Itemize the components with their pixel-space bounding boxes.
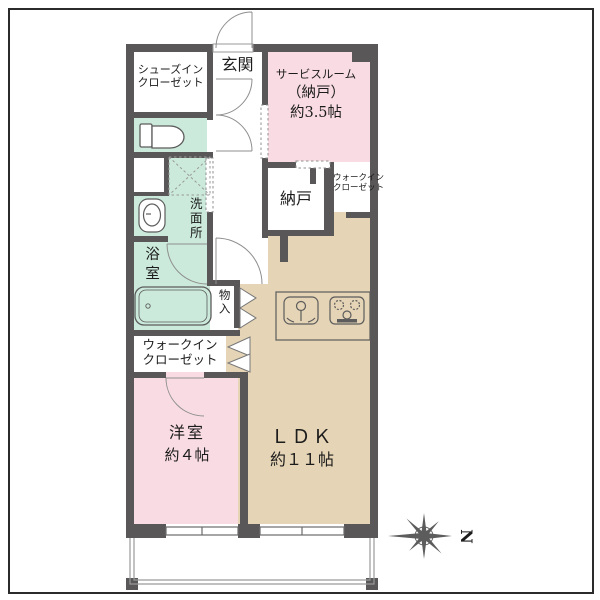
label-wic-lower-line1: ウォークイン [134, 338, 226, 353]
label-service-room: サービスルーム （納戸） 約3.5帖 [266, 68, 366, 122]
compass-rose-icon [388, 503, 457, 568]
label-wic-lower: ウォークイン クローゼット [134, 338, 226, 368]
label-western-room-line2: 約４帖 [134, 447, 240, 465]
label-wic-upper: ウォークイン クローゼット [333, 173, 371, 193]
vanity-sink-icon [139, 199, 165, 232]
compass-north-label: N [456, 529, 475, 544]
label-service-room-line2: （納戸） [266, 85, 366, 102]
label-wic-lower-line2: クローゼット [134, 353, 226, 368]
label-entrance: 玄関 [213, 56, 262, 75]
label-monoire: 物入 [217, 289, 231, 316]
label-service-room-line1: サービスルーム [266, 68, 366, 82]
label-western-room-line1: 洋室 [134, 424, 240, 443]
label-wic-upper-line2: クローゼット [333, 183, 371, 193]
label-ldk-line2: 約１１帖 [250, 451, 354, 470]
label-wic-upper-line1: ウォークイン [333, 173, 371, 183]
entrance-door-arc [216, 12, 252, 48]
label-ldk-line1: ＬＤＫ [250, 426, 354, 448]
balcony-outline [130, 538, 374, 584]
toilet-icon [140, 124, 184, 148]
label-service-room-line3: 約3.5帖 [266, 105, 366, 122]
label-western-room: 洋室 約４帖 [134, 424, 240, 465]
label-shoe-closet: シューズイン クローゼット [134, 64, 207, 90]
label-washroom: 洗面所 [187, 197, 202, 241]
label-ldk: ＬＤＫ 約１１帖 [250, 426, 354, 470]
label-nando: 納戸 [268, 190, 324, 209]
bathtub-icon [135, 287, 211, 325]
label-shoe-closet-line2: クローゼット [134, 77, 207, 90]
floorplan-page: シューズイン クローゼット 玄関 サービスルーム （納戸） 約3.5帖 納戸 ウ… [0, 0, 600, 600]
label-bathroom: 浴室 [142, 246, 159, 285]
